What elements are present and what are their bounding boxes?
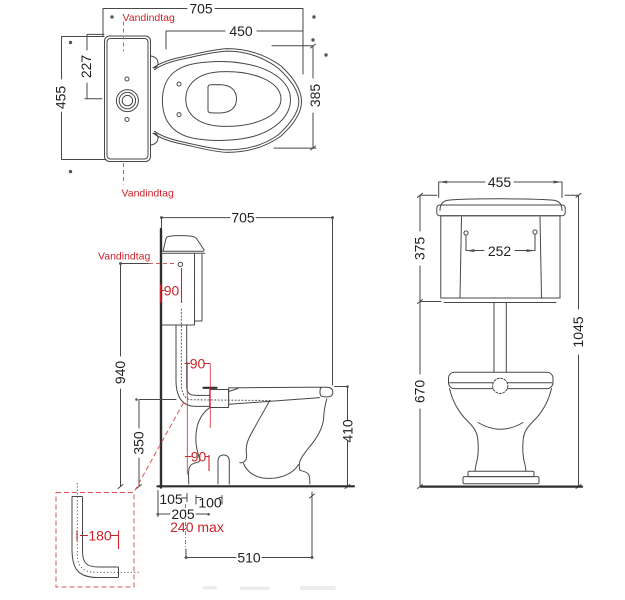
- svg-text:940: 940: [112, 361, 128, 385]
- svg-text:455: 455: [488, 174, 512, 190]
- svg-text:90: 90: [190, 356, 206, 372]
- svg-text:450: 450: [229, 23, 253, 39]
- svg-text:375: 375: [412, 237, 428, 261]
- svg-text:455: 455: [53, 86, 69, 110]
- svg-text:100: 100: [198, 495, 222, 511]
- svg-text:90: 90: [164, 283, 180, 299]
- svg-text:105: 105: [159, 491, 183, 507]
- svg-text:90: 90: [191, 449, 207, 465]
- svg-text:Vandindtag: Vandindtag: [122, 188, 175, 200]
- svg-text:227: 227: [78, 55, 94, 79]
- svg-text:705: 705: [231, 209, 255, 225]
- svg-text:705: 705: [189, 1, 213, 17]
- svg-text:670: 670: [412, 380, 428, 404]
- svg-text:240 max: 240 max: [170, 519, 224, 535]
- svg-text:410: 410: [340, 419, 356, 443]
- svg-text:385: 385: [307, 84, 323, 108]
- svg-text:180: 180: [88, 528, 112, 544]
- svg-text:1045: 1045: [570, 316, 586, 347]
- svg-text:Vandindtag: Vandindtag: [98, 250, 151, 262]
- svg-text:252: 252: [488, 243, 512, 259]
- svg-text:510: 510: [237, 550, 261, 566]
- svg-text:350: 350: [131, 431, 147, 455]
- svg-text:Vandindtag: Vandindtag: [123, 12, 176, 24]
